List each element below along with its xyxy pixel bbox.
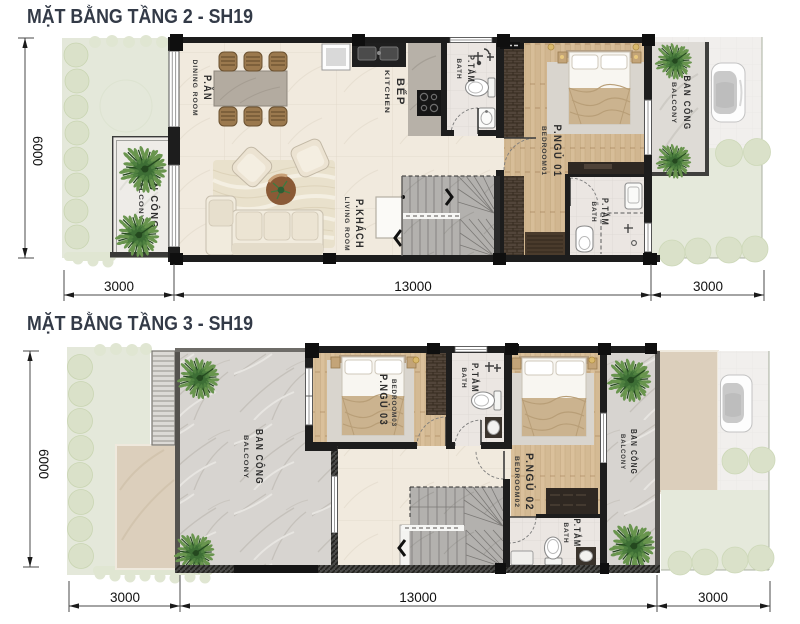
svg-text:KITCHEN: KITCHEN [383, 70, 390, 114]
svg-text:P.TẮM: P.TẮM [599, 198, 610, 226]
svg-text:3000: 3000 [104, 279, 134, 294]
svg-text:P.NGỦ 03: P.NGỦ 03 [377, 374, 390, 426]
svg-text:3000: 3000 [698, 590, 728, 605]
svg-text:P.TẮM: P.TẮM [571, 519, 582, 548]
svg-text:P.NGỦ 02: P.NGỦ 02 [523, 453, 536, 511]
svg-text:BATH: BATH [455, 59, 462, 80]
svg-text:13000: 13000 [399, 590, 437, 605]
svg-text:13000: 13000 [394, 279, 432, 294]
svg-text:BAN CÔNG: BAN CÔNG [629, 429, 640, 475]
svg-text:DINING ROOM: DINING ROOM [191, 60, 198, 117]
svg-text:3000: 3000 [110, 590, 140, 605]
svg-text:BALCONY: BALCONY [619, 434, 625, 470]
svg-text:BALCONY: BALCONY [242, 435, 249, 479]
svg-text:MẶT BẰNG TẦNG 2 - SH19: MẶT BẰNG TẦNG 2 - SH19 [27, 4, 253, 28]
svg-text:BEDROOM03: BEDROOM03 [390, 379, 397, 427]
svg-text:BATH: BATH [460, 368, 467, 389]
svg-text:MẶT BẰNG TẦNG 3 - SH19: MẶT BẰNG TẦNG 3 - SH19 [27, 311, 253, 335]
svg-text:P.KHÁCH: P.KHÁCH [353, 199, 366, 249]
svg-text:BATH: BATH [562, 523, 569, 544]
svg-text:P.ĂN: P.ĂN [201, 75, 214, 101]
svg-text:LIVING ROOM: LIVING ROOM [343, 197, 350, 252]
svg-text:P.TẮM: P.TẮM [465, 55, 476, 83]
svg-text:BEDROOM02: BEDROOM02 [513, 456, 520, 508]
svg-text:P.NGỦ 01: P.NGỦ 01 [551, 125, 564, 178]
svg-text:BAN CÔNG: BAN CÔNG [681, 76, 693, 131]
svg-text:BATH: BATH [590, 202, 597, 223]
svg-text:3000: 3000 [693, 279, 723, 294]
svg-text:BALCONY: BALCONY [670, 82, 677, 124]
svg-text:BAN CÔNG: BAN CÔNG [253, 429, 266, 485]
svg-text:6000: 6000 [30, 136, 45, 166]
svg-text:P.TẮM: P.TẮM [469, 363, 480, 393]
svg-text:6000: 6000 [36, 449, 51, 479]
svg-text:BẾP: BẾP [394, 78, 407, 106]
svg-text:BEDROOM01: BEDROOM01 [540, 126, 547, 176]
